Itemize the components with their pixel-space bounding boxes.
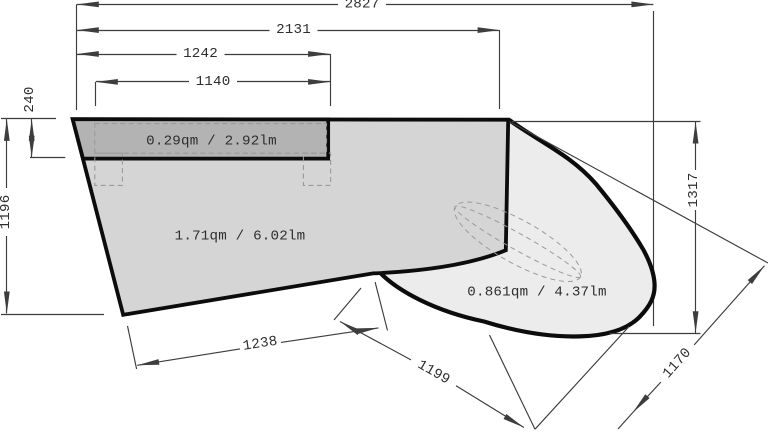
svg-text:240: 240: [22, 86, 38, 112]
svg-text:0.861qm / 4.37lm: 0.861qm / 4.37lm: [467, 285, 606, 301]
svg-text:1.71qm / 6.02lm: 1.71qm / 6.02lm: [175, 229, 306, 245]
svg-text:1317: 1317: [686, 173, 702, 208]
svg-text:1242: 1242: [183, 46, 218, 62]
svg-text:2827: 2827: [345, 0, 380, 12]
svg-text:1196: 1196: [0, 195, 14, 230]
svg-text:1140: 1140: [196, 74, 231, 90]
svg-text:2131: 2131: [276, 22, 311, 38]
svg-text:0.29qm / 2.92lm: 0.29qm / 2.92lm: [146, 134, 277, 150]
